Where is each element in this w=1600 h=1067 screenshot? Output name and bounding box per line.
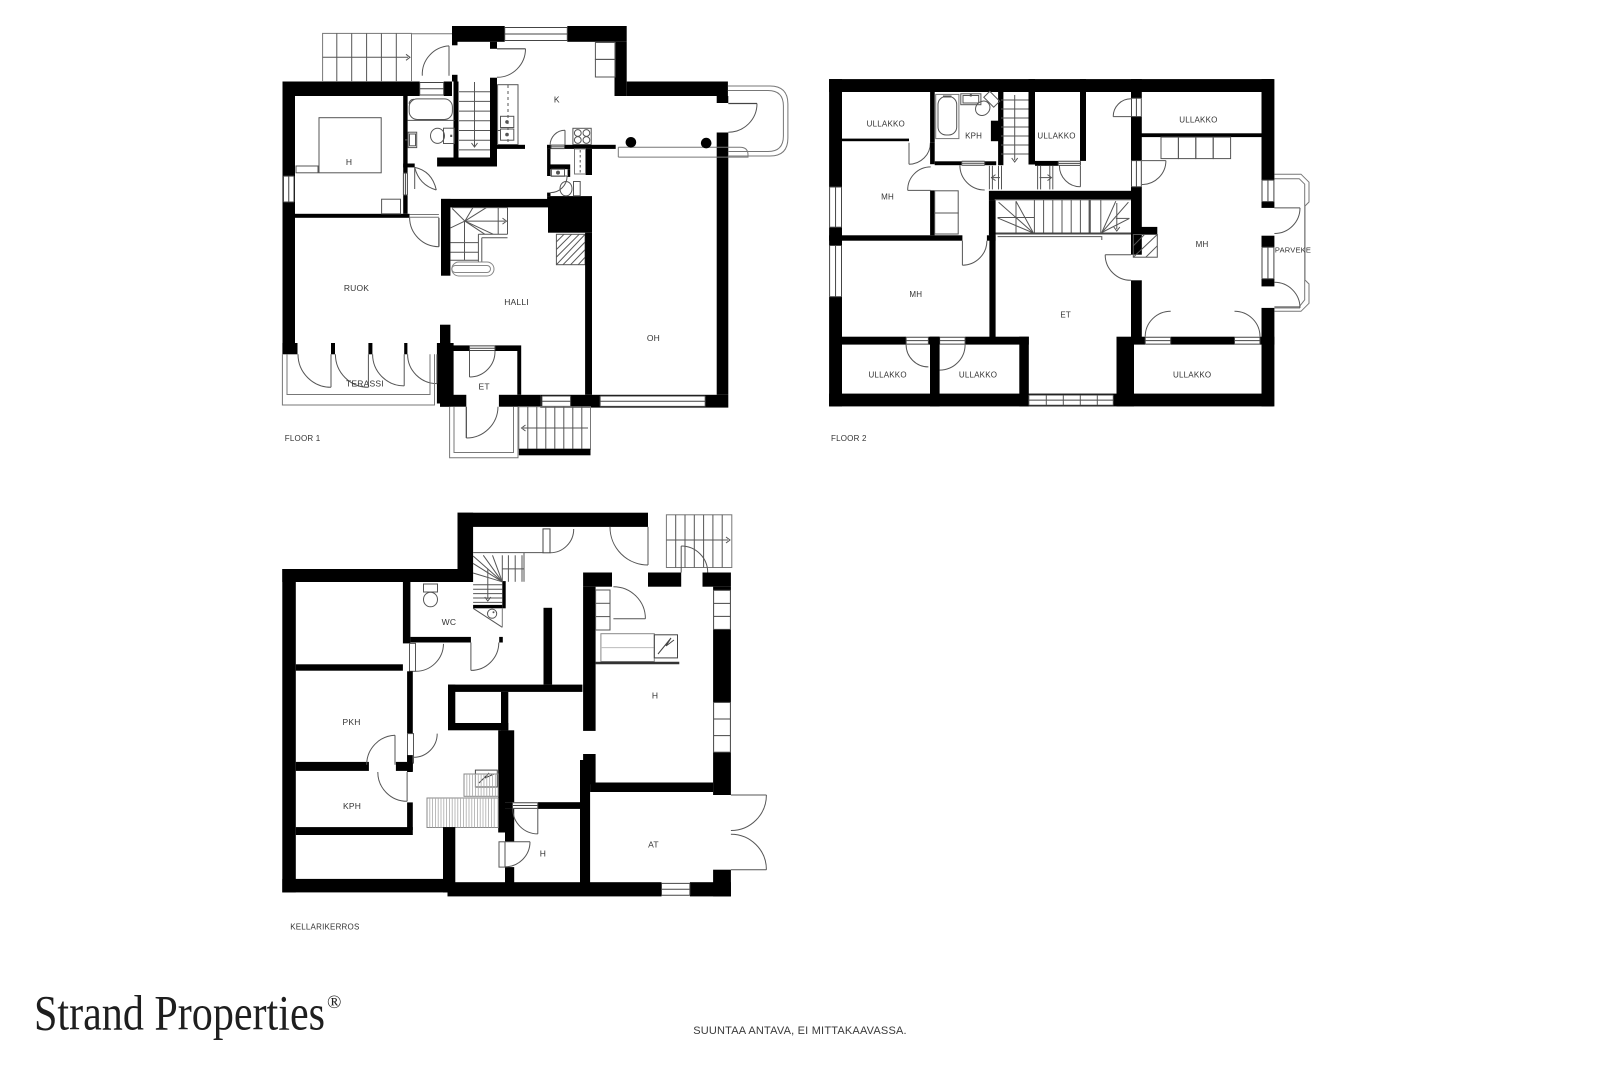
svg-text:®: ® xyxy=(327,992,341,1013)
svg-text:ULLAKKO: ULLAKKO xyxy=(868,370,906,379)
svg-text:KPH: KPH xyxy=(965,131,982,140)
svg-text:ET: ET xyxy=(478,381,489,391)
svg-text:MH: MH xyxy=(881,192,894,201)
svg-text:KELLARIKERROS: KELLARIKERROS xyxy=(290,923,359,932)
svg-text:ULLAKKO: ULLAKKO xyxy=(1179,116,1217,125)
svg-text:PARVEKE: PARVEKE xyxy=(1275,245,1311,254)
svg-text:K: K xyxy=(554,95,560,105)
svg-text:H: H xyxy=(540,849,546,859)
svg-text:FLOOR 2: FLOOR 2 xyxy=(831,434,867,443)
svg-text:ET: ET xyxy=(1060,310,1071,319)
svg-text:ULLAKKO: ULLAKKO xyxy=(959,370,997,379)
svg-text:PKH: PKH xyxy=(343,717,361,727)
svg-text:FLOOR 1: FLOOR 1 xyxy=(285,434,321,443)
svg-text:TERASSI: TERASSI xyxy=(346,379,384,389)
svg-text:H: H xyxy=(652,691,658,701)
svg-text:AT: AT xyxy=(648,840,659,850)
svg-text:SUUNTAA ANTAVA, EI MITTAKAAVAS: SUUNTAA ANTAVA, EI MITTAKAAVASSA. xyxy=(693,1025,907,1037)
svg-text:ULLAKKO: ULLAKKO xyxy=(1173,370,1211,379)
svg-text:MH: MH xyxy=(909,290,922,299)
svg-text:Strand Properties: Strand Properties xyxy=(34,985,325,1041)
svg-text:WC: WC xyxy=(442,617,457,627)
svg-text:ULLAKKO: ULLAKKO xyxy=(1037,131,1075,140)
svg-text:RUOK: RUOK xyxy=(344,283,369,293)
svg-text:HALLI: HALLI xyxy=(504,297,529,307)
svg-text:KPH: KPH xyxy=(343,801,361,811)
svg-text:H: H xyxy=(346,157,352,167)
svg-text:OH: OH xyxy=(647,333,660,343)
svg-text:ULLAKKO: ULLAKKO xyxy=(867,120,905,129)
svg-text:MH: MH xyxy=(1196,240,1209,249)
